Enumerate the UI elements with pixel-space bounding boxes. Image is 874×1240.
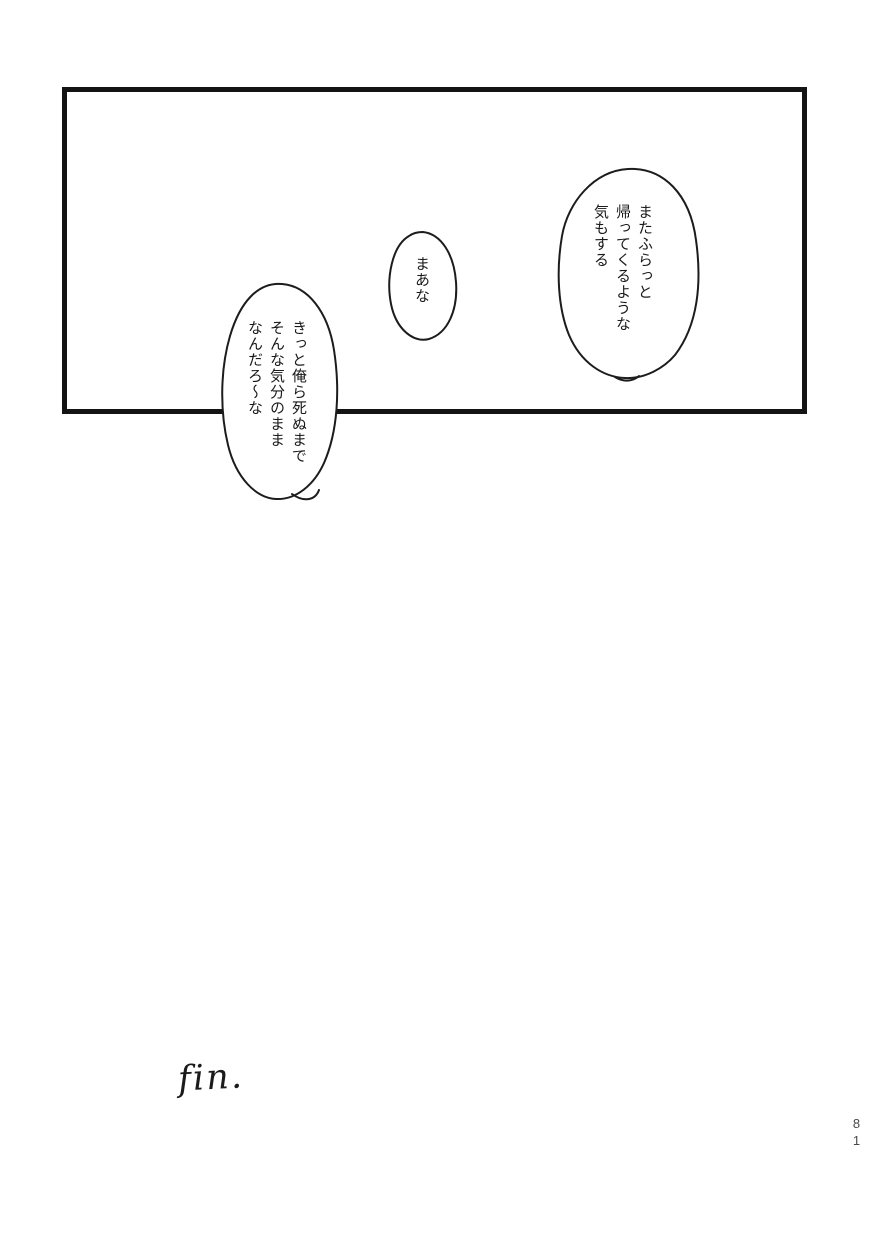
- speech-bubble-3: きっと俺ら死ぬまで そんな気分のまま なんだろ〜な: [216, 282, 342, 504]
- manga-page: またふらっと 帰ってくるような 気もする まあな きっと俺ら死ぬまで そんな気分…: [0, 0, 874, 1240]
- page-number: 81: [849, 1116, 864, 1150]
- speech-bubble-1: またふらっと 帰ってくるような 気もする: [553, 166, 703, 388]
- speech-bubble-2: まあな: [383, 230, 461, 345]
- fin-handwriting: fin.: [177, 1056, 245, 1099]
- speech-text-2: まあな: [404, 256, 432, 318]
- speech-text-3: きっと俺ら死ぬまで そんな気分のまま なんだろ〜な: [239, 320, 309, 482]
- speech-text-1: またふらっと 帰ってくるような 気もする: [585, 204, 655, 362]
